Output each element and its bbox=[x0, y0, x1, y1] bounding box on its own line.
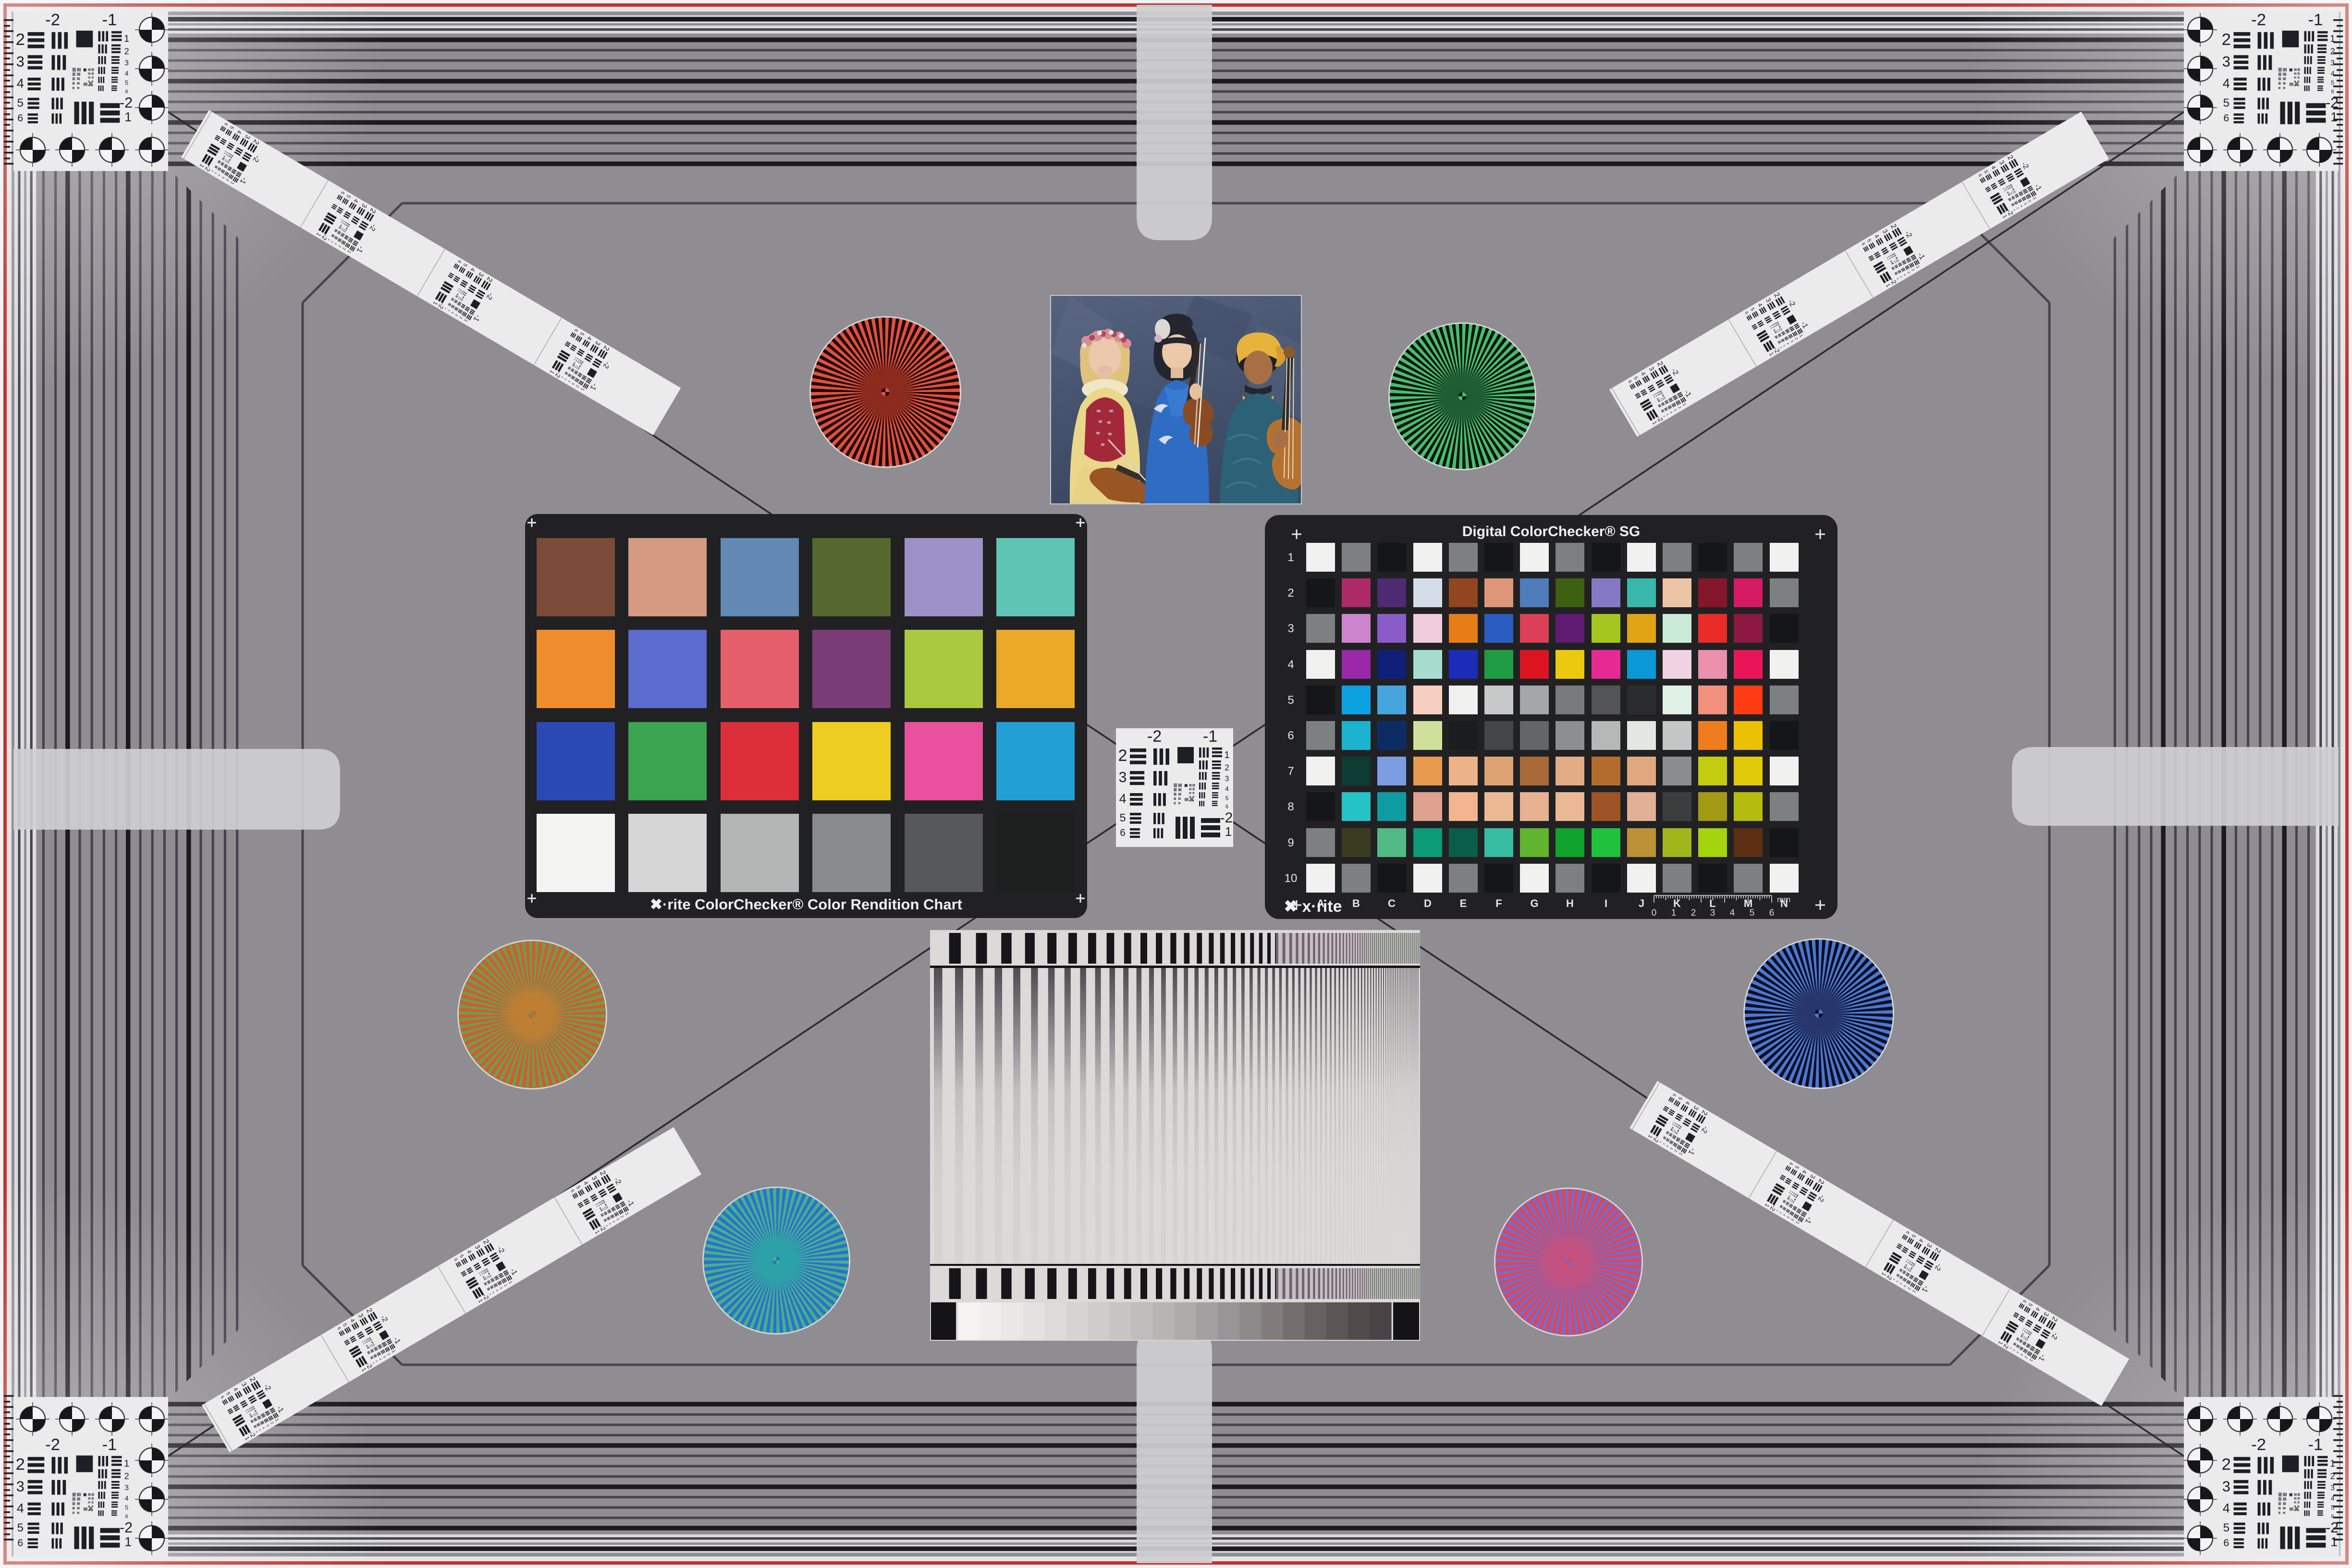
svg-text:1: 1 bbox=[1287, 551, 1294, 564]
svg-text:6: 6 bbox=[1287, 729, 1294, 742]
svg-text:J: J bbox=[1639, 897, 1644, 909]
svg-text:7: 7 bbox=[1287, 765, 1294, 778]
svg-text:4: 4 bbox=[1287, 658, 1294, 671]
svg-text:Digital ColorChecker® SG: Digital ColorChecker® SG bbox=[1462, 524, 1641, 539]
svg-text:8: 8 bbox=[1287, 800, 1294, 813]
svg-text:4: 4 bbox=[1730, 908, 1735, 918]
svg-text:3: 3 bbox=[1710, 908, 1715, 918]
svg-text:H: H bbox=[1566, 897, 1574, 909]
svg-text:5: 5 bbox=[1287, 694, 1294, 707]
svg-text:0: 0 bbox=[1652, 908, 1657, 918]
svg-text:D: D bbox=[1424, 897, 1432, 909]
svg-text:E: E bbox=[1460, 897, 1467, 909]
svg-text:B: B bbox=[1352, 897, 1360, 909]
svg-text:2: 2 bbox=[1287, 587, 1294, 600]
svg-text:C: C bbox=[1388, 897, 1396, 909]
svg-text:9: 9 bbox=[1287, 836, 1294, 849]
svg-text:1: 1 bbox=[1671, 908, 1677, 918]
svg-text:mm: mm bbox=[1777, 895, 1790, 904]
svg-text:6: 6 bbox=[1769, 908, 1775, 918]
svg-text:G: G bbox=[1530, 897, 1538, 909]
svg-text:F: F bbox=[1495, 897, 1502, 909]
svg-text:3: 3 bbox=[1287, 622, 1294, 635]
svg-text:10: 10 bbox=[1285, 872, 1298, 885]
svg-text:2: 2 bbox=[1691, 908, 1696, 918]
svg-text:✖ x·rite: ✖ x·rite bbox=[1284, 897, 1342, 916]
svg-text:5: 5 bbox=[1750, 908, 1755, 918]
svg-text:✖·rite ColorChecker® Color Ren: ✖·rite ColorChecker® Color Rendition Cha… bbox=[650, 896, 962, 913]
svg-text:I: I bbox=[1605, 897, 1607, 909]
